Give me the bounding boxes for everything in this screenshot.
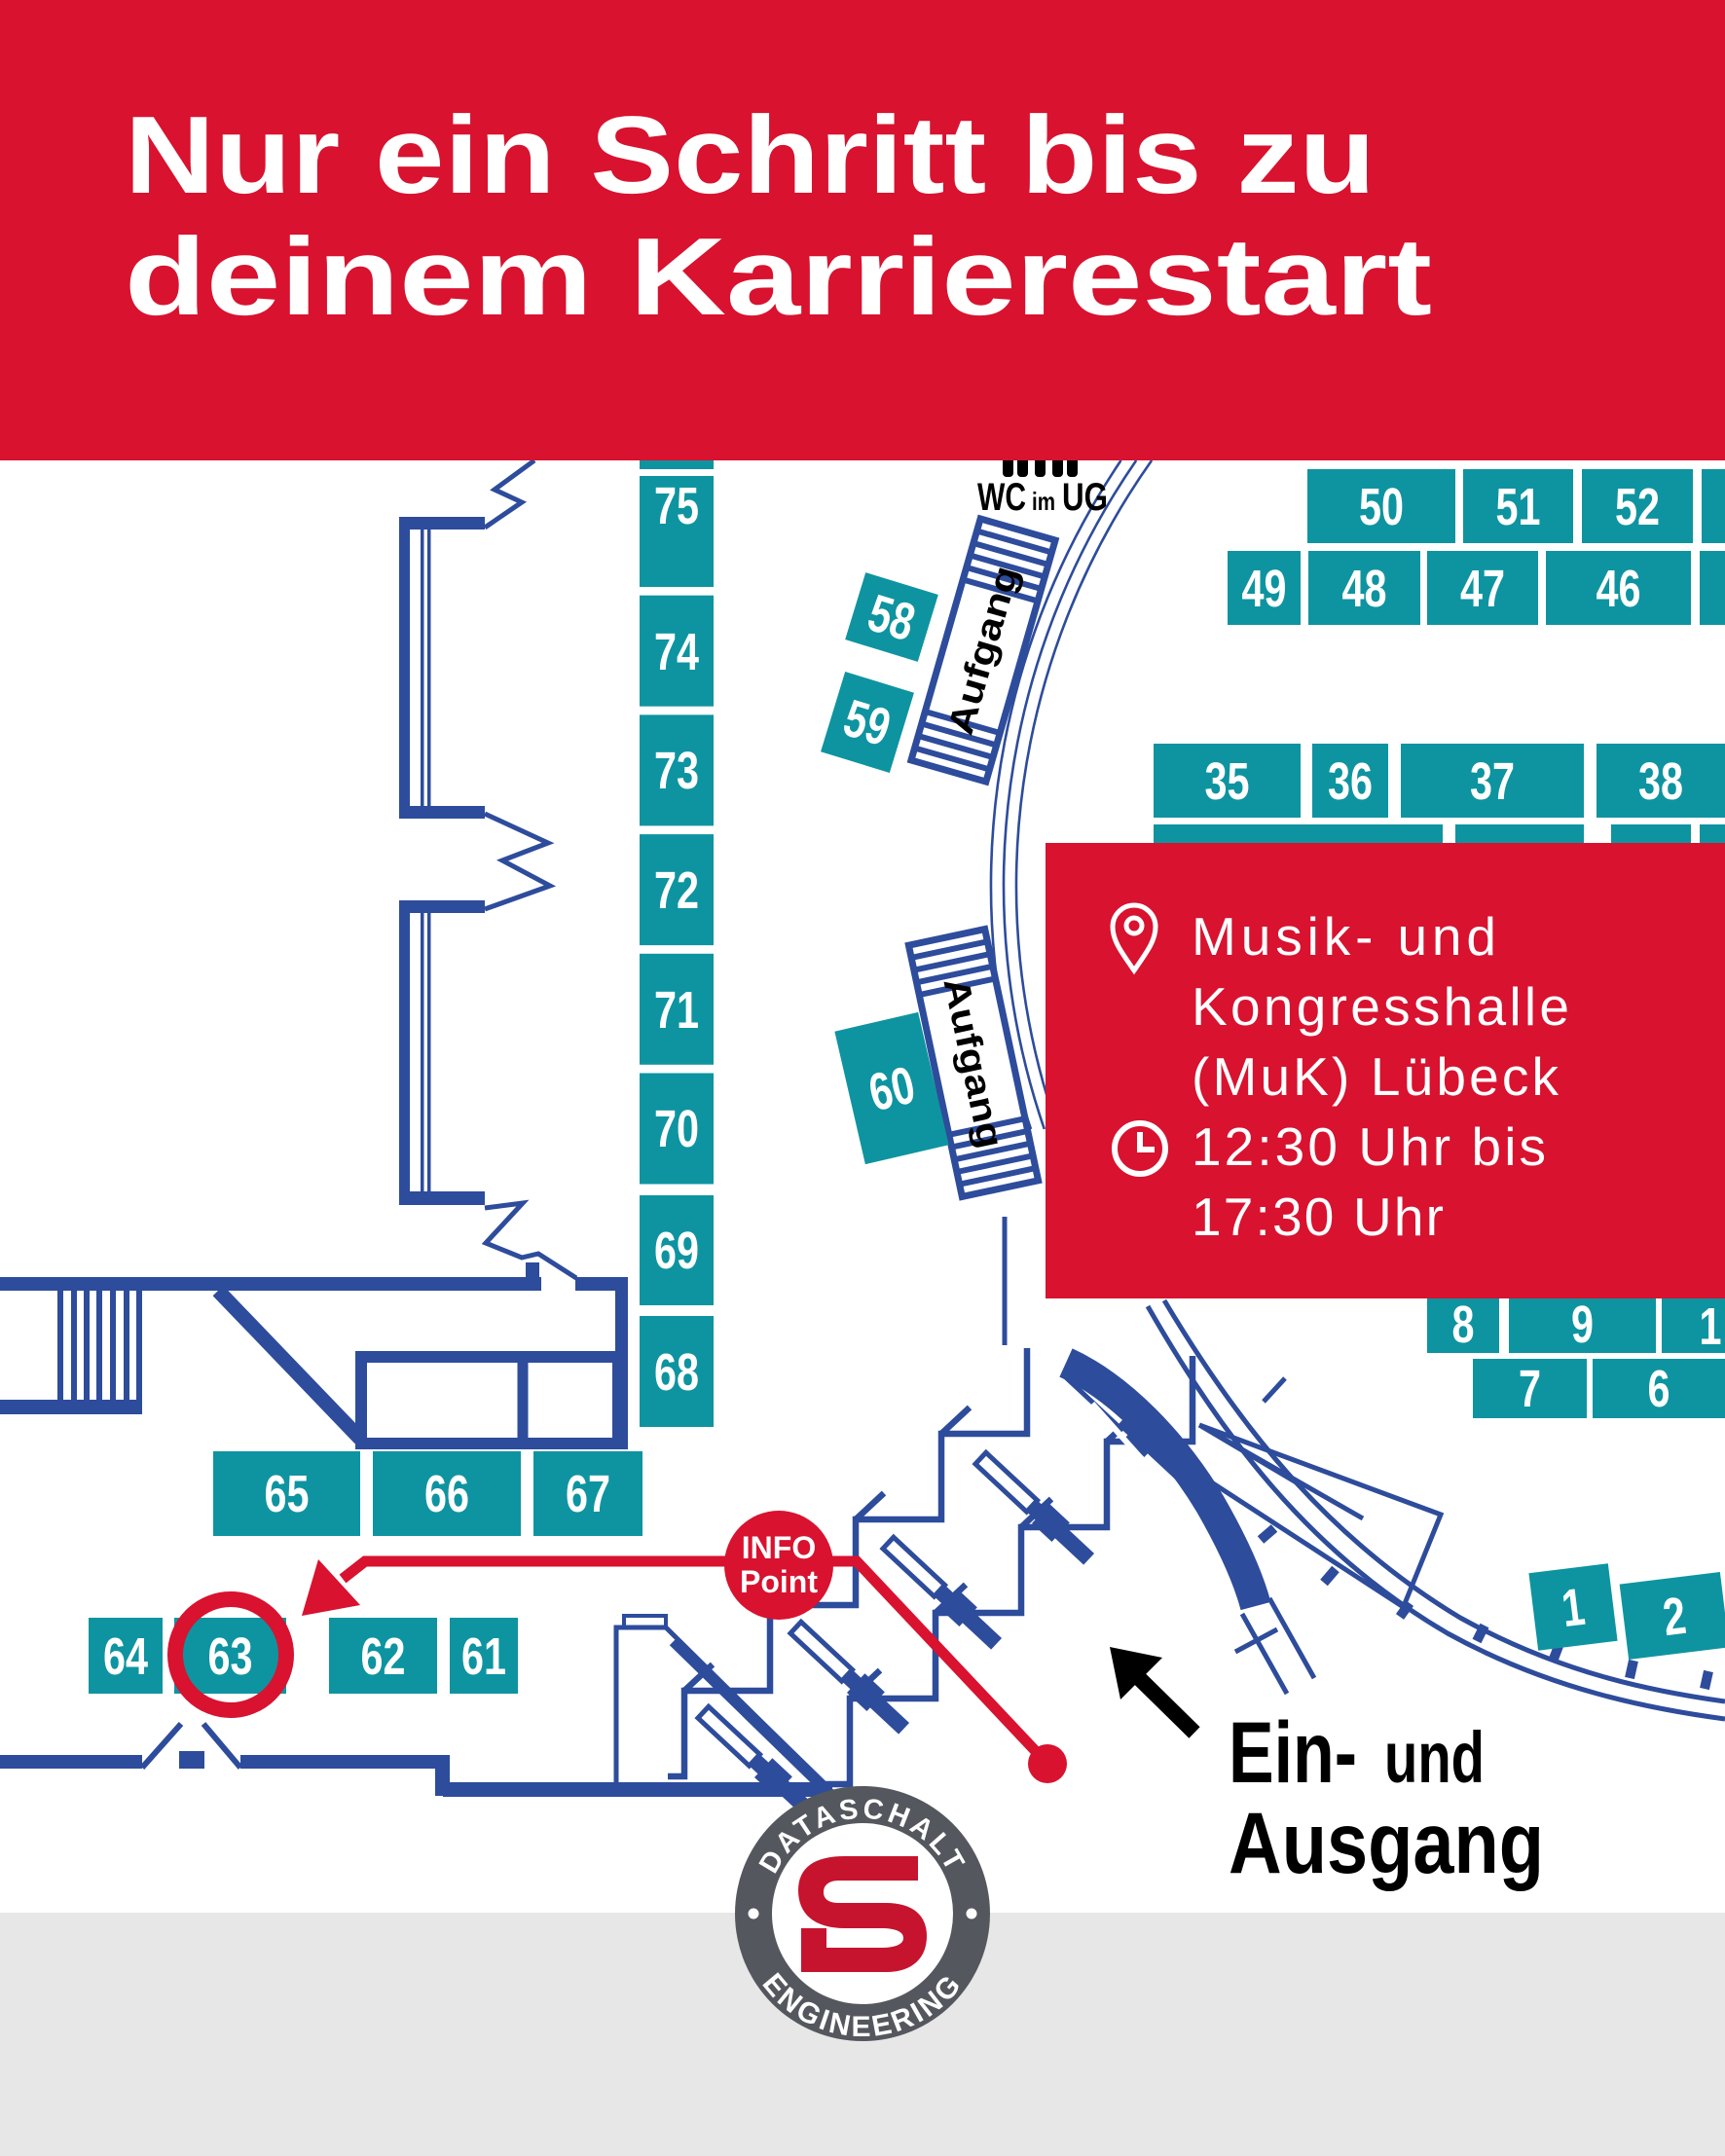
svg-text:36: 36 [1328, 752, 1373, 811]
svg-text:35: 35 [1205, 752, 1250, 811]
svg-text:1: 1 [1700, 1297, 1722, 1356]
svg-text:62: 62 [361, 1627, 406, 1686]
svg-text:und: und [1384, 1717, 1485, 1798]
svg-text:deinem Karrierestart: deinem Karrierestart [125, 215, 1432, 338]
svg-text:64: 64 [103, 1627, 148, 1686]
svg-text:74: 74 [654, 623, 699, 681]
svg-text:im: im [1032, 487, 1055, 516]
svg-text:75: 75 [654, 477, 699, 535]
svg-text:61: 61 [461, 1627, 506, 1686]
svg-text:70: 70 [654, 1100, 699, 1158]
svg-text:12:30 Uhr bis: 12:30 Uhr bis [1192, 1116, 1546, 1177]
svg-text:72: 72 [654, 861, 699, 920]
svg-text:7: 7 [1519, 1360, 1541, 1418]
svg-text:UG: UG [1062, 476, 1108, 519]
svg-text:65: 65 [265, 1465, 310, 1523]
svg-text:52: 52 [1615, 478, 1660, 536]
svg-text:63: 63 [208, 1627, 253, 1686]
svg-text:(MuK) Lübeck: (MuK) Lübeck [1192, 1046, 1560, 1107]
svg-text:9: 9 [1571, 1296, 1594, 1354]
svg-text:67: 67 [566, 1465, 610, 1523]
svg-text:Nur ein Schritt bis zu: Nur ein Schritt bis zu [125, 93, 1376, 216]
svg-text:WC: WC [977, 476, 1026, 519]
svg-text:66: 66 [424, 1465, 469, 1523]
svg-text:Ausgang: Ausgang [1229, 1794, 1544, 1891]
svg-text:37: 37 [1470, 752, 1515, 811]
svg-text:38: 38 [1638, 752, 1683, 811]
svg-text:17:30 Uhr: 17:30 Uhr [1192, 1187, 1444, 1247]
svg-text:51: 51 [1496, 478, 1541, 536]
svg-text:8: 8 [1452, 1296, 1475, 1354]
svg-text:68: 68 [654, 1343, 699, 1402]
svg-text:49: 49 [1242, 560, 1287, 618]
svg-text:Point: Point [740, 1564, 818, 1599]
svg-text:50: 50 [1359, 478, 1404, 536]
svg-text:73: 73 [654, 742, 699, 800]
svg-text:69: 69 [654, 1222, 699, 1280]
svg-text:71: 71 [654, 981, 699, 1040]
svg-text:INFO: INFO [742, 1530, 816, 1565]
svg-text:47: 47 [1460, 560, 1505, 618]
svg-text:48: 48 [1342, 560, 1387, 618]
svg-text:Ein-: Ein- [1229, 1703, 1357, 1801]
svg-text:6: 6 [1648, 1360, 1670, 1418]
svg-text:46: 46 [1597, 560, 1641, 618]
